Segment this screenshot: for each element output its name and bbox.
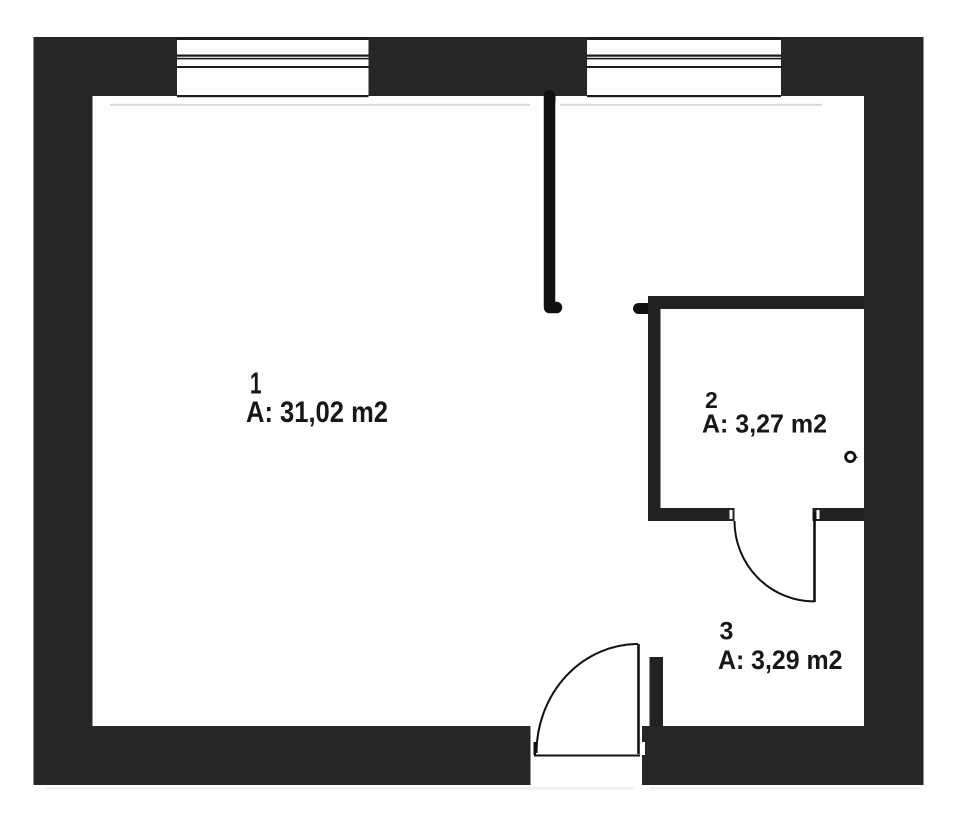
svg-text:A: 3,29 m2: A: 3,29 m2: [718, 645, 843, 675]
svg-text:3: 3: [720, 618, 734, 646]
svg-text:A: 3,27 m2: A: 3,27 m2: [702, 409, 827, 439]
svg-text:A: 31,02 m2: A: 31,02 m2: [246, 396, 388, 429]
